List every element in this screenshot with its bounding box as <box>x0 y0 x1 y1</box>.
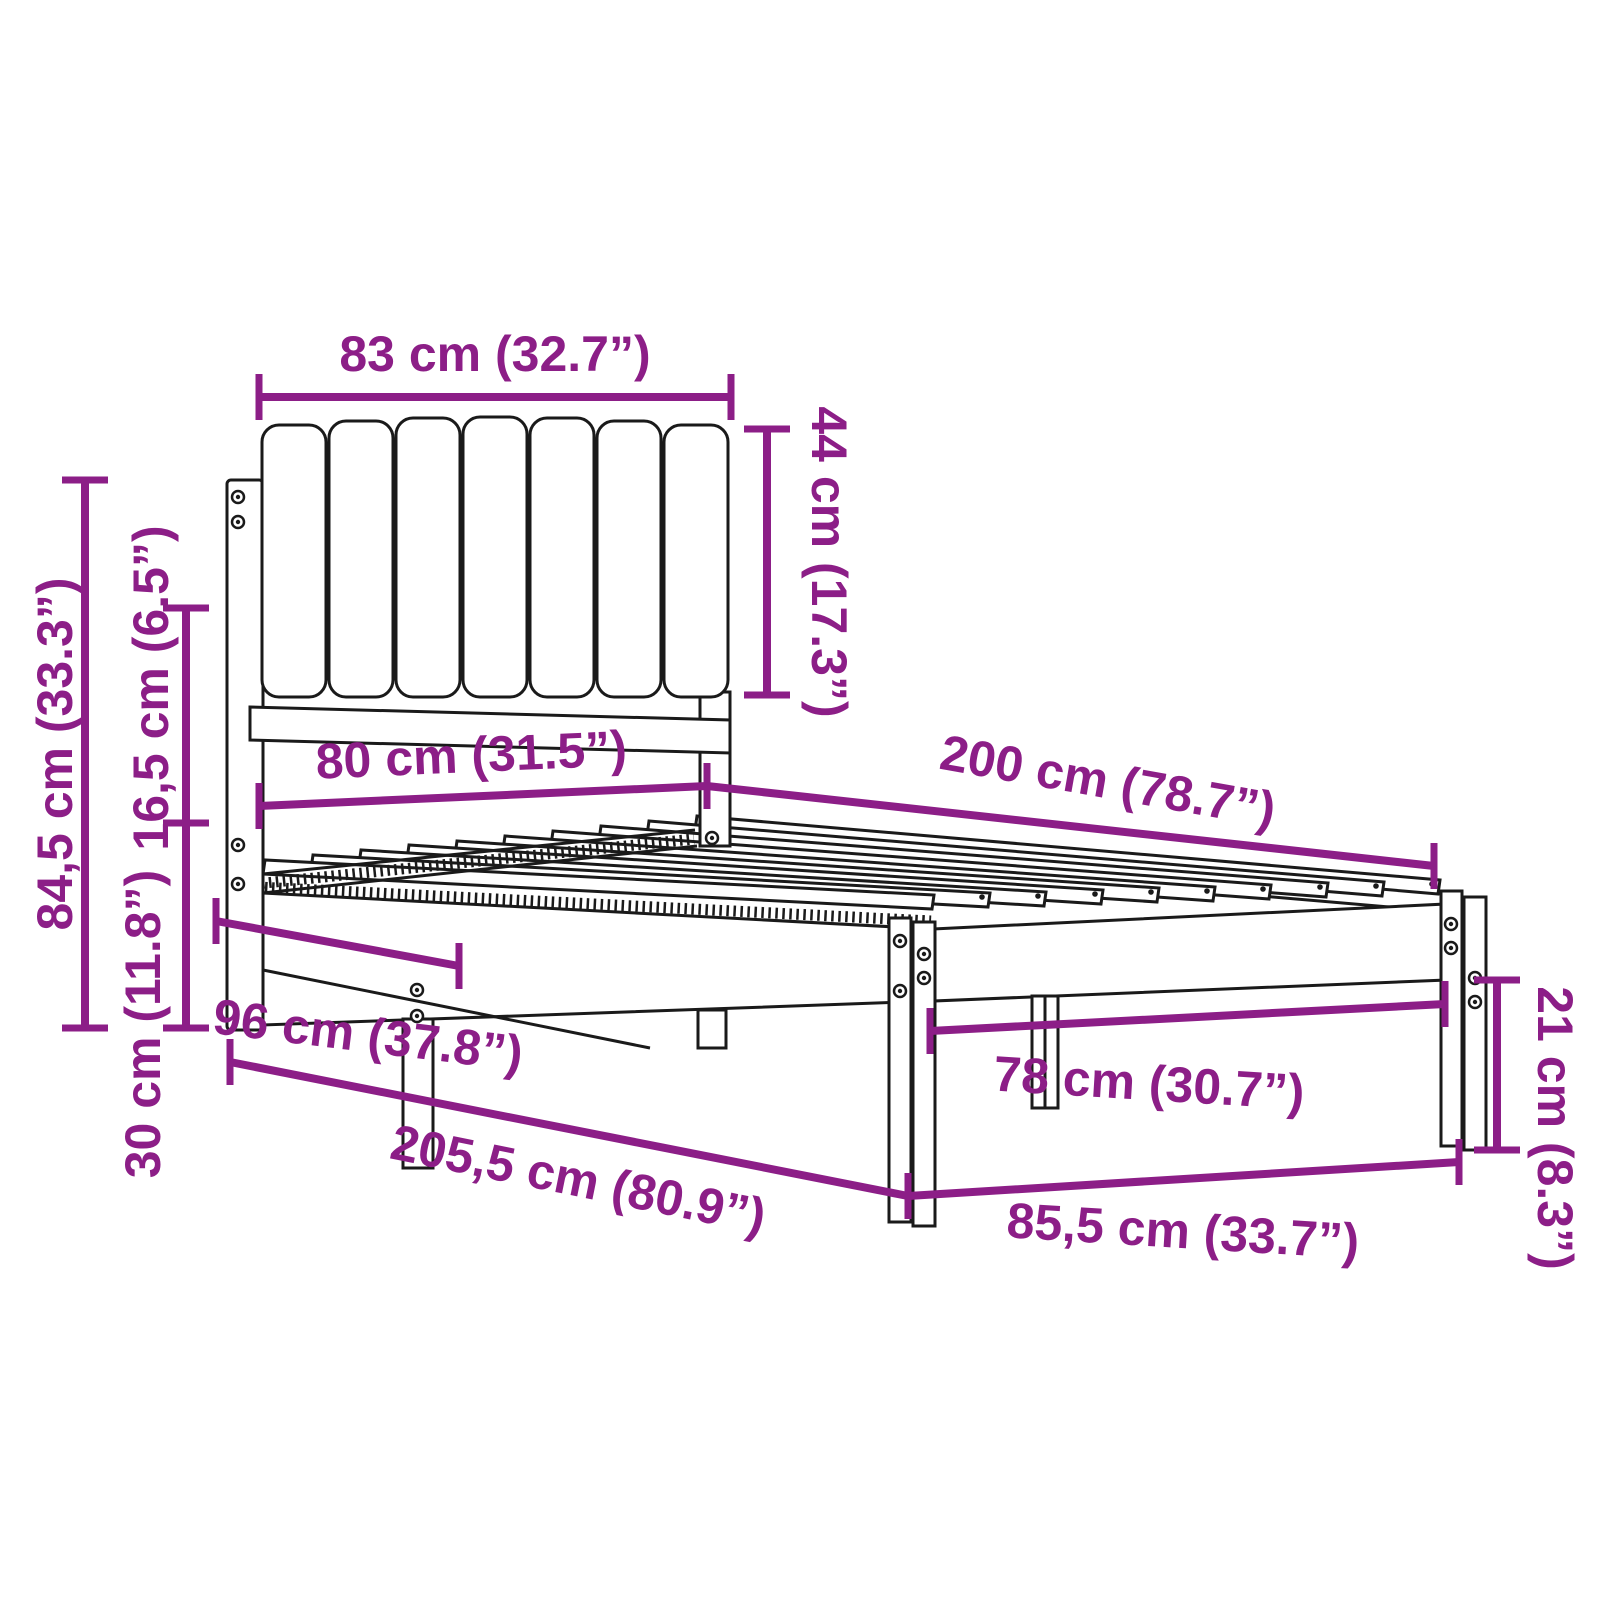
dimension-annotations: 83 cm (32.7”) 44 cm (17.3”) 84,5 cm (33.… <box>27 326 1583 1270</box>
center-support-leg <box>698 1010 726 1048</box>
dimension-total-length: 205,5 cm (80.9”) <box>230 1039 908 1245</box>
foot-front-corner-leg <box>889 918 935 1226</box>
dimension-headboard-width: 83 cm (32.7”) <box>259 326 731 420</box>
dimension-headboard-total-height: 84,5 cm (33.3”) <box>27 480 108 1028</box>
dimension-side-rail-height: 16,5 cm (6.5”) <box>123 525 209 850</box>
dimension-label: 30 cm (11.8”) <box>115 870 171 1179</box>
foot-rail <box>933 904 1446 1001</box>
dimension-label: 85,5 cm (33.7”) <box>1005 1192 1361 1269</box>
dimension-label: 83 cm (32.7”) <box>339 326 650 382</box>
diagram-svg: 83 cm (32.7”) 44 cm (17.3”) 84,5 cm (33.… <box>0 0 1600 1600</box>
slat-end-mark <box>1092 891 1098 897</box>
cushion-pillow <box>262 425 326 697</box>
dimension-foot-leg-height: 21 cm (8.3”) <box>1474 980 1583 1270</box>
dimension-label: 16,5 cm (6.5”) <box>123 525 179 850</box>
slat-end-mark <box>1317 884 1323 890</box>
dimension-foot-total-width: 85,5 cm (33.7”) <box>908 1139 1459 1270</box>
dimension-label: 44 cm (17.3”) <box>801 406 857 717</box>
dimension-base-height: 30 cm (11.8”) <box>115 823 209 1178</box>
slat-end-mark <box>979 894 985 900</box>
product-dimension-diagram: 83 cm (32.7”) 44 cm (17.3”) 84,5 cm (33.… <box>0 0 1600 1600</box>
dimension-label: 21 cm (8.3”) <box>1527 986 1583 1269</box>
dimension-label: 84,5 cm (33.3”) <box>27 578 83 931</box>
cushion-pillow <box>664 425 728 697</box>
headboard-cushion <box>262 417 728 697</box>
slat-end-mark <box>1373 883 1379 889</box>
dimension-foot-inner-width: 78 cm (30.7”) <box>930 981 1445 1120</box>
headboard-front-post <box>227 480 263 1030</box>
slat-end-mark <box>1035 893 1041 899</box>
cushion-pillow <box>530 418 594 697</box>
cushion-pillow <box>396 418 460 697</box>
slat-end-mark <box>1204 888 1210 894</box>
cushion-pillow <box>463 417 527 697</box>
dimension-headboard-panel-height: 44 cm (17.3”) <box>744 406 857 717</box>
slat-end-mark <box>1260 886 1266 892</box>
cushion-pillow <box>329 421 393 697</box>
cushion-pillow <box>597 421 661 697</box>
dimension-label: 200 cm (78.7”) <box>936 724 1280 838</box>
slat-end-mark <box>1148 889 1154 895</box>
